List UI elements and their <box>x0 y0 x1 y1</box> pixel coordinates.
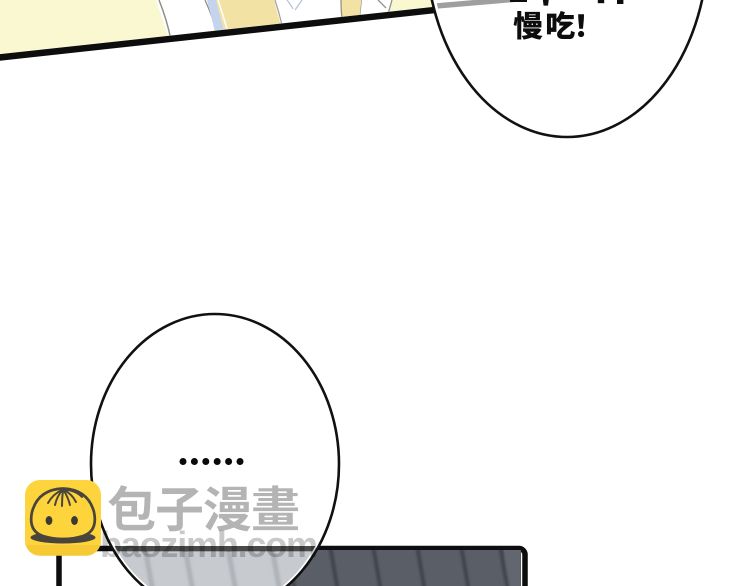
svg-text:baozimh.com: baozimh.com <box>100 524 317 565</box>
